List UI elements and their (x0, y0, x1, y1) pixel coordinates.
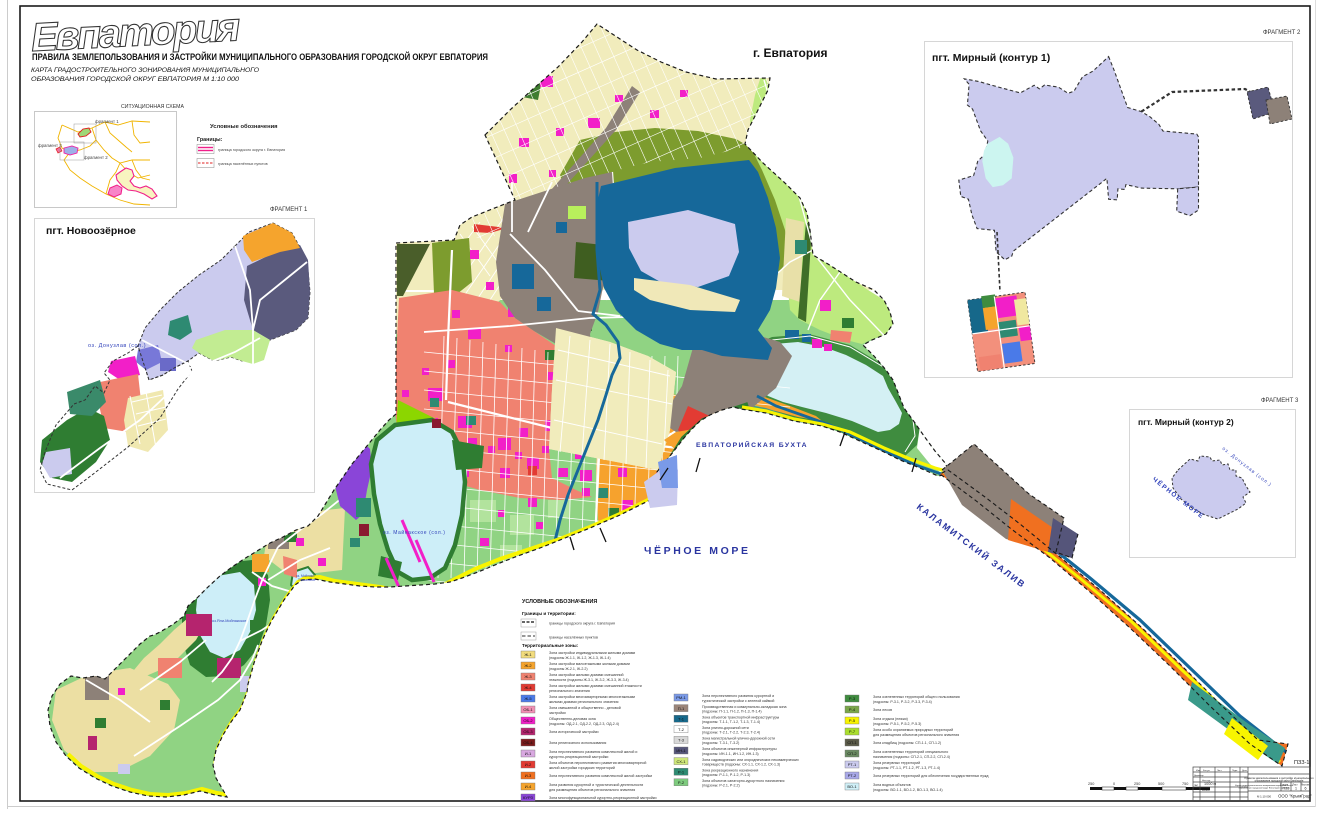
svg-text:ЕВПАТОРИЙСКАЯ БУХТА: ЕВПАТОРИЙСКАЯ БУХТА (696, 440, 808, 449)
svg-text:Зона садоводческих или огородн: Зона садоводческих или огороднических не… (702, 758, 799, 762)
svg-text:(подзоны: Р-2.1, Р-2.2): (подзоны: Р-2.1, Р-2.2) (702, 784, 740, 788)
svg-text:Зона особо охраняемых природны: Зона особо охраняемых природных территор… (873, 728, 953, 732)
svg-text:Зона объектов санаторно-курорт: Зона объектов санаторно-курортного назна… (702, 779, 784, 783)
svg-text:750: 750 (1182, 782, 1188, 786)
svg-text:РТ-1: РТ-1 (848, 762, 857, 767)
svg-text:Зона застройки многоквартирным: Зона застройки многоквартирными многоэта… (549, 695, 635, 699)
svg-text:Зона перспективного развития к: Зона перспективного развития комплексной… (549, 774, 652, 778)
svg-text:Зона отдыха (пляжи): Зона отдыха (пляжи) (873, 717, 908, 721)
svg-text:КАРТА ГРАДОСТРОИТЕЛЬНОГО ЗОНИР: КАРТА ГРАДОСТРОИТЕЛЬНОГО ЗОНИРОВАНИЯ МУН… (31, 67, 259, 74)
svg-text:ОБРАЗОВАНИЯ ГОРОДСКОЙ ОКРУГ ЕВ: ОБРАЗОВАНИЯ ГОРОДСКОЙ ОКРУГ ЕВПАТОРИЯ М … (31, 74, 239, 83)
svg-text:И-3: И-3 (525, 773, 532, 778)
svg-text:Директор: Директор (1194, 775, 1204, 777)
svg-text:(подзоны: П-1.1, П-1.2, П-1.3,: (подзоны: П-1.1, П-1.2, П-1.3, П-1.4) (702, 709, 762, 713)
svg-text:Зона кладбищ (подзоны: СП-1.1,: Зона кладбищ (подзоны: СП-1.1, СП-1.2) (873, 741, 941, 745)
svg-text:И-4: И-4 (525, 784, 532, 789)
svg-text:Р-3: Р-3 (849, 696, 856, 701)
svg-text:УСЛОВНЫЕ ОБОЗНАЧЕНИЯ: УСЛОВНЫЕ ОБОЗНАЧЕНИЯ (522, 599, 597, 605)
svg-text:ЧЁРНОЕ МОРЕ: ЧЁРНОЕ МОРЕ (644, 544, 751, 557)
svg-text:для размещения объектов регион: для размещения объектов регионального зн… (549, 788, 635, 792)
svg-text:застройки: застройки (549, 711, 566, 715)
svg-text:250: 250 (1088, 782, 1094, 786)
svg-text:Зона резервных территорий: Зона резервных территорий (873, 761, 920, 765)
svg-text:(подзоны: РТ-1.1, РТ-1.2, РТ-1: (подзоны: РТ-1.1, РТ-1.2, РТ-1.3, РТ-1.4… (873, 766, 940, 770)
svg-text:курортно-рекреационной застрой: курортно-рекреационной застройки (549, 755, 608, 759)
svg-text:Зона перспективного развития к: Зона перспективного развития комплексной… (549, 750, 637, 754)
svg-text:Зона перспективного развития к: Зона перспективного развития курортной и (702, 694, 774, 698)
svg-text:жилыми домами регионального зн: жилыми домами регионального значения (549, 700, 619, 704)
svg-text:Р-1: Р-1 (678, 769, 685, 774)
svg-text:ОБ-3: ОБ-3 (523, 729, 533, 734)
svg-text:СП-1: СП-1 (847, 740, 857, 745)
svg-text:Границы и территории:: Границы и территории: (522, 611, 576, 616)
svg-text:Ж-5: Ж-5 (524, 696, 532, 701)
svg-text:Зона развития курортной и тури: Зона развития курортной и туристической … (549, 783, 643, 787)
svg-text:Зона водных объектов: Зона водных объектов (873, 783, 911, 787)
svg-text:(подзоны: ВО-1.1, ВО-1.2, ВО-1: (подзоны: ВО-1.1, ВО-1.2, ВО-1.3, ВО-1.4… (873, 788, 943, 792)
svg-text:пгт. Мирный (контур 1): пгт. Мирный (контур 1) (932, 52, 1050, 64)
svg-text:Зона застройки малоэтажными жи: Зона застройки малоэтажными жилыми домам… (549, 662, 630, 666)
svg-text:граница населённых пунктов: граница населённых пунктов (218, 162, 268, 166)
svg-text:Т-2: Т-2 (678, 727, 685, 732)
svg-text:Р-5: Р-5 (849, 718, 856, 723)
svg-text:КУРЗ: КУРЗ (523, 795, 533, 800)
svg-text:Зона застройки жилыми домами с: Зона застройки жилыми домами смешанной э… (549, 684, 642, 688)
svg-text:границы населённых пунктов: границы населённых пунктов (549, 636, 598, 640)
svg-text:ФРАГМЕНТ 3: ФРАГМЕНТ 3 (1261, 398, 1299, 404)
svg-text:ООО "КрымГрад": ООО "КрымГрад" (1278, 794, 1312, 799)
svg-text:(подзоны Ж-2.1, Ж-2.2): (подзоны Ж-2.1, Ж-2.2) (549, 667, 588, 671)
svg-text:Ж-1: Ж-1 (524, 652, 532, 657)
svg-text:Зона исторической застройки: Зона исторической застройки (549, 730, 599, 734)
svg-text:Зона объектов инженерной инфр: Зона объектов инженерной инфраструктуры (702, 747, 777, 751)
svg-text:туристической застройки с зеле: туристической застройки с зеленой каймой (702, 699, 774, 703)
svg-text:Зона озелененных территорий сп: Зона озелененных территорий специального (873, 750, 948, 754)
svg-text:0: 0 (1113, 782, 1115, 786)
svg-text:М 1:10 000: М 1:10 000 (1257, 795, 1271, 799)
svg-text:оз. Донузлав (сол.): оз. Донузлав (сол.) (88, 343, 146, 349)
svg-text:Листов: Листов (1301, 784, 1309, 787)
svg-text:СХ-1: СХ-1 (677, 759, 687, 764)
svg-text:Общественно-деловая зона: Общественно-деловая зона (549, 717, 596, 721)
svg-text:Ж-4: Ж-4 (524, 685, 532, 690)
svg-text:Стадия: Стадия (1280, 784, 1289, 787)
svg-text:ФРАГМЕНТ 2: ФРАГМЕНТ 2 (1263, 30, 1301, 36)
svg-text:фрагмент 3: фрагмент 3 (38, 143, 62, 148)
svg-text:граница городского округа г. Е: граница городского округа г. Евпатория (218, 148, 285, 152)
svg-text:Исполн.: Исполн. (1202, 790, 1211, 792)
svg-text:ФРАГМЕНТ 1: ФРАГМЕНТ 1 (270, 207, 308, 213)
svg-text:Зона улично-дорожной сети: Зона улично-дорожной сети (702, 726, 749, 730)
svg-text:оз.Яли-Мойнакское: оз.Яли-Мойнакское (212, 619, 246, 623)
svg-text:ВО-1: ВО-1 (847, 784, 857, 789)
svg-text:1000 м: 1000 м (1204, 782, 1217, 786)
svg-text:пгт. Новоозёрное: пгт. Новоозёрное (46, 225, 136, 237)
svg-text:И-1: И-1 (525, 751, 532, 756)
svg-text:П-1: П-1 (678, 706, 685, 711)
svg-text:ПЗЗ: ПЗЗ (1283, 787, 1290, 791)
svg-text:6: 6 (1305, 787, 1307, 791)
svg-text:Томчанское: Томчанское (298, 578, 316, 582)
svg-text:(подзоны: Т-3.1, Т-3.2): (подзоны: Т-3.1, Т-3.2) (702, 741, 739, 745)
svg-text:пгт. Мирный (контур 2): пгт. Мирный (контур 2) (1138, 417, 1234, 427)
svg-text:(подзоны: Р-3.1, Р-3.2, Р-3.3,: (подзоны: Р-3.1, Р-3.2, Р-3.3, Р-3.4) (873, 700, 932, 704)
svg-text:Зона объектов перспективного р: Зона объектов перспективного развития мн… (549, 761, 646, 765)
svg-text:Зона рекреационного назначения: Зона рекреационного назначения (702, 768, 758, 772)
svg-text:Р-4: Р-4 (849, 707, 856, 712)
svg-text:Территориальные зоны:: Территориальные зоны: (522, 643, 579, 648)
svg-text:Т-1: Т-1 (678, 716, 685, 721)
svg-text:фрагмент 2: фрагмент 2 (84, 155, 108, 160)
svg-text:назначения (подзоны: СП-2.1, С: назначения (подзоны: СП-2.1, СП-2.2, СП-… (873, 755, 950, 759)
svg-text:Производственная и коммунально: Производственная и коммунально-складская… (702, 705, 786, 709)
svg-text:Зона объектов транспортной ин: Зона объектов транспортной инфраструктур… (702, 715, 780, 719)
svg-text:Границы:: Границы: (197, 137, 223, 143)
svg-text:границы городского округа г. Е: границы городского округа г. Евпатория (549, 622, 615, 626)
svg-text:Нач.отд.: Нач.отд. (1202, 780, 1211, 782)
svg-text:Зона многофункциональной курор: Зона многофункциональной курортно-рекреа… (549, 796, 657, 800)
svg-text:Зона магистральной улично-доро: Зона магистральной улично-дорожной сети (702, 737, 775, 741)
svg-text:этажности (подзоны Ж-3.1, Ж-3.: этажности (подзоны Ж-3.1, Ж-3.2, Ж-3.3, … (549, 678, 629, 682)
svg-text:Условные обозначения: Условные обозначения (210, 123, 278, 130)
svg-text:жилой застройки городских терр: жилой застройки городских территорий (549, 766, 615, 770)
svg-text:Ж-2: Ж-2 (524, 663, 532, 668)
svg-text:СП-2: СП-2 (847, 751, 857, 756)
svg-text:(подзоны: ИН-1.1, ИН-1.2, ИН-1: (подзоны: ИН-1.1, ИН-1.2, ИН-1.3) (702, 752, 759, 756)
svg-text:(подзоны: Р-5.1, Р-5.2, Р-5.3): (подзоны: Р-5.1, Р-5.2, Р-5.3) (873, 722, 921, 726)
svg-text:Дата: Дата (1242, 770, 1248, 772)
svg-text:образования городской округ Ев: образования городской округ Евпатория (1255, 778, 1304, 782)
svg-text:ИН-1: ИН-1 (676, 748, 686, 753)
svg-text:ПЗЗ-1: ПЗЗ-1 (1294, 760, 1310, 766)
svg-text:Зона смешанной и общественно -: Зона смешанной и общественно - деловой (549, 706, 621, 710)
svg-text:Р-2: Р-2 (678, 780, 685, 785)
svg-text:И-2: И-2 (525, 762, 532, 767)
svg-text:(подзоны: Т-2.1, Т-2.2, Т-2.3,: (подзоны: Т-2.1, Т-2.2, Т-2.3, Т-2.4) (702, 731, 760, 735)
svg-text:(подзоны: Т-1.1, Т-1.2, Т-1.3,: (подзоны: Т-1.1, Т-1.2, Т-1.3, Т-1.4) (702, 720, 760, 724)
svg-text:ОБ-2: ОБ-2 (523, 718, 533, 723)
svg-text:для размещения объектов регион: для размещения объектов регионального зн… (873, 733, 959, 737)
svg-text:Зона религиозного использовани: Зона религиозного использования (549, 741, 606, 745)
svg-text:Р-7: Р-7 (849, 729, 856, 734)
svg-text:250: 250 (1134, 782, 1140, 786)
svg-text:Зона лесов: Зона лесов (873, 708, 892, 712)
svg-text:товариществ (подзоны: СХ-1.1,: товариществ (подзоны: СХ-1.1, СХ-1.2, СХ… (702, 762, 780, 766)
svg-text:фрагмент 1: фрагмент 1 (95, 119, 119, 124)
svg-text:1: 1 (1295, 787, 1297, 791)
svg-text:г. Евпатория: г. Евпатория (753, 46, 828, 60)
svg-text:Зона застройки индивидуальными: Зона застройки индивидуальными жилыми до… (549, 651, 635, 655)
svg-text:(подзоны: Р-1.1, Р-1.2, Р-1.3): (подзоны: Р-1.1, Р-1.2, Р-1.3) (702, 773, 750, 777)
svg-text:оз. Майнакское (сол.): оз. Майнакское (сол.) (383, 529, 446, 536)
svg-text:регионального значения: регионального значения (549, 689, 590, 693)
svg-text:ОБ-1: ОБ-1 (523, 707, 533, 712)
svg-text:500: 500 (1158, 782, 1164, 786)
svg-text:(подзоны Ж-1.1, Ж-1.2, Ж-1.3,: (подзоны Ж-1.1, Ж-1.2, Ж-1.3, Ж-1.4) (549, 656, 611, 660)
svg-text:СИТУАЦИОННАЯ СХЕМА: СИТУАЦИОННАЯ СХЕМА (121, 104, 184, 110)
svg-text:ПРАВИЛА ЗЕМЛЕПОЛЬЗОВАНИЯ И ЗАС: ПРАВИЛА ЗЕМЛЕПОЛЬЗОВАНИЯ И ЗАСТРОЙКИ МУН… (32, 51, 488, 62)
svg-text:Лист: Лист (1217, 770, 1222, 772)
svg-text:Зона застройки жилыми домами с: Зона застройки жилыми домами смешанной (549, 673, 624, 677)
svg-text:Лист: Лист (1292, 784, 1298, 787)
svg-text:Зона озелененных территорий об: Зона озелененных территорий общего польз… (873, 695, 960, 699)
svg-text:Т-3: Т-3 (678, 738, 685, 743)
svg-text:Ж-3: Ж-3 (524, 674, 532, 679)
svg-text:РМ-1: РМ-1 (676, 695, 686, 700)
svg-text:Зона резервных территорий для: Зона резервных территорий для обеспечени… (873, 774, 989, 778)
svg-text:ГАП: ГАП (1194, 784, 1198, 787)
svg-text:Подп.: Подп. (1232, 770, 1238, 772)
svg-text:Изм.: Изм. (1196, 770, 1201, 772)
svg-text:РТ-2: РТ-2 (848, 773, 857, 778)
svg-text:ОБ-4: ОБ-4 (523, 740, 533, 745)
svg-text:Кол.уч.: Кол.уч. (1203, 770, 1211, 772)
svg-text:(подзоны: ОД-2.1, ОД-2.2, ОД-2: (подзоны: ОД-2.1, ОД-2.2, ОД-2.3, ОД-2.4… (549, 722, 619, 726)
